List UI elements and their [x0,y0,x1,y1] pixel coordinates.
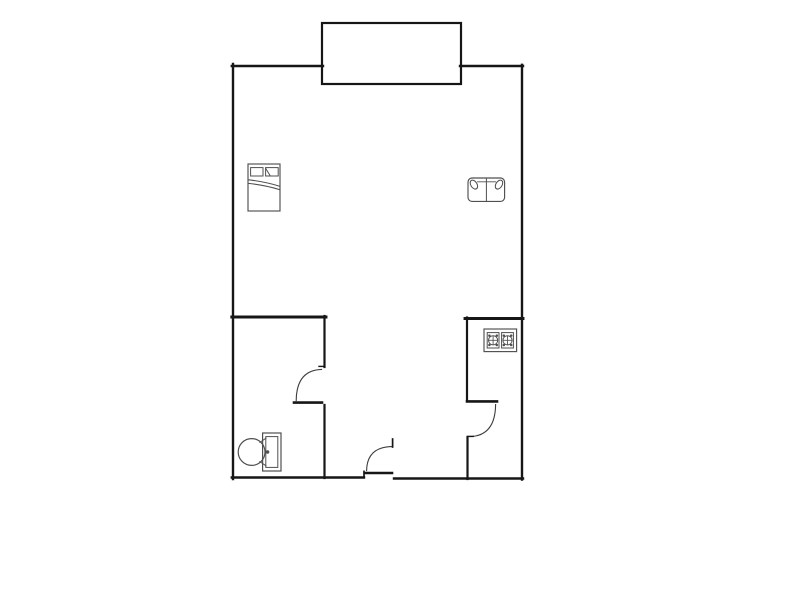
sofa-armrest-left [469,179,479,191]
bed-pillow-left [251,168,263,176]
balcony-outline [322,23,461,84]
kitchen-door-arc [470,405,495,437]
bathroom-door [294,366,325,402]
sofa-icon [468,178,505,201]
stove-burner-right-dot-3 [503,344,506,347]
toilet-icon [238,433,281,471]
stove-burner-left-dot-1 [488,334,491,337]
balcony [322,23,461,84]
stove-burner-left-dot-4 [496,344,499,347]
kitchen-door [467,401,497,436]
stove-burner-right-dot-2 [510,334,513,337]
floor-plan-canvas [0,0,800,600]
stove-burner-left-dot-2 [496,334,499,337]
toilet-bowl [238,439,265,466]
toilet-flush-button [266,450,269,453]
floorplan-page [0,0,800,600]
walls [232,64,523,480]
stove-icon [484,329,517,352]
stove-burner-right-dot-1 [503,334,506,337]
bed-frame [248,164,280,211]
stove-burner-left-dot-3 [488,344,491,347]
bed-icon [248,164,280,211]
entry-door-arc [367,447,392,471]
sofa-armrest-right [494,179,504,191]
bathroom-door-arc [296,369,321,400]
bed-pillow-fold [266,168,271,176]
stove-burner-right-dot-4 [510,344,513,347]
entry-door [364,439,393,477]
